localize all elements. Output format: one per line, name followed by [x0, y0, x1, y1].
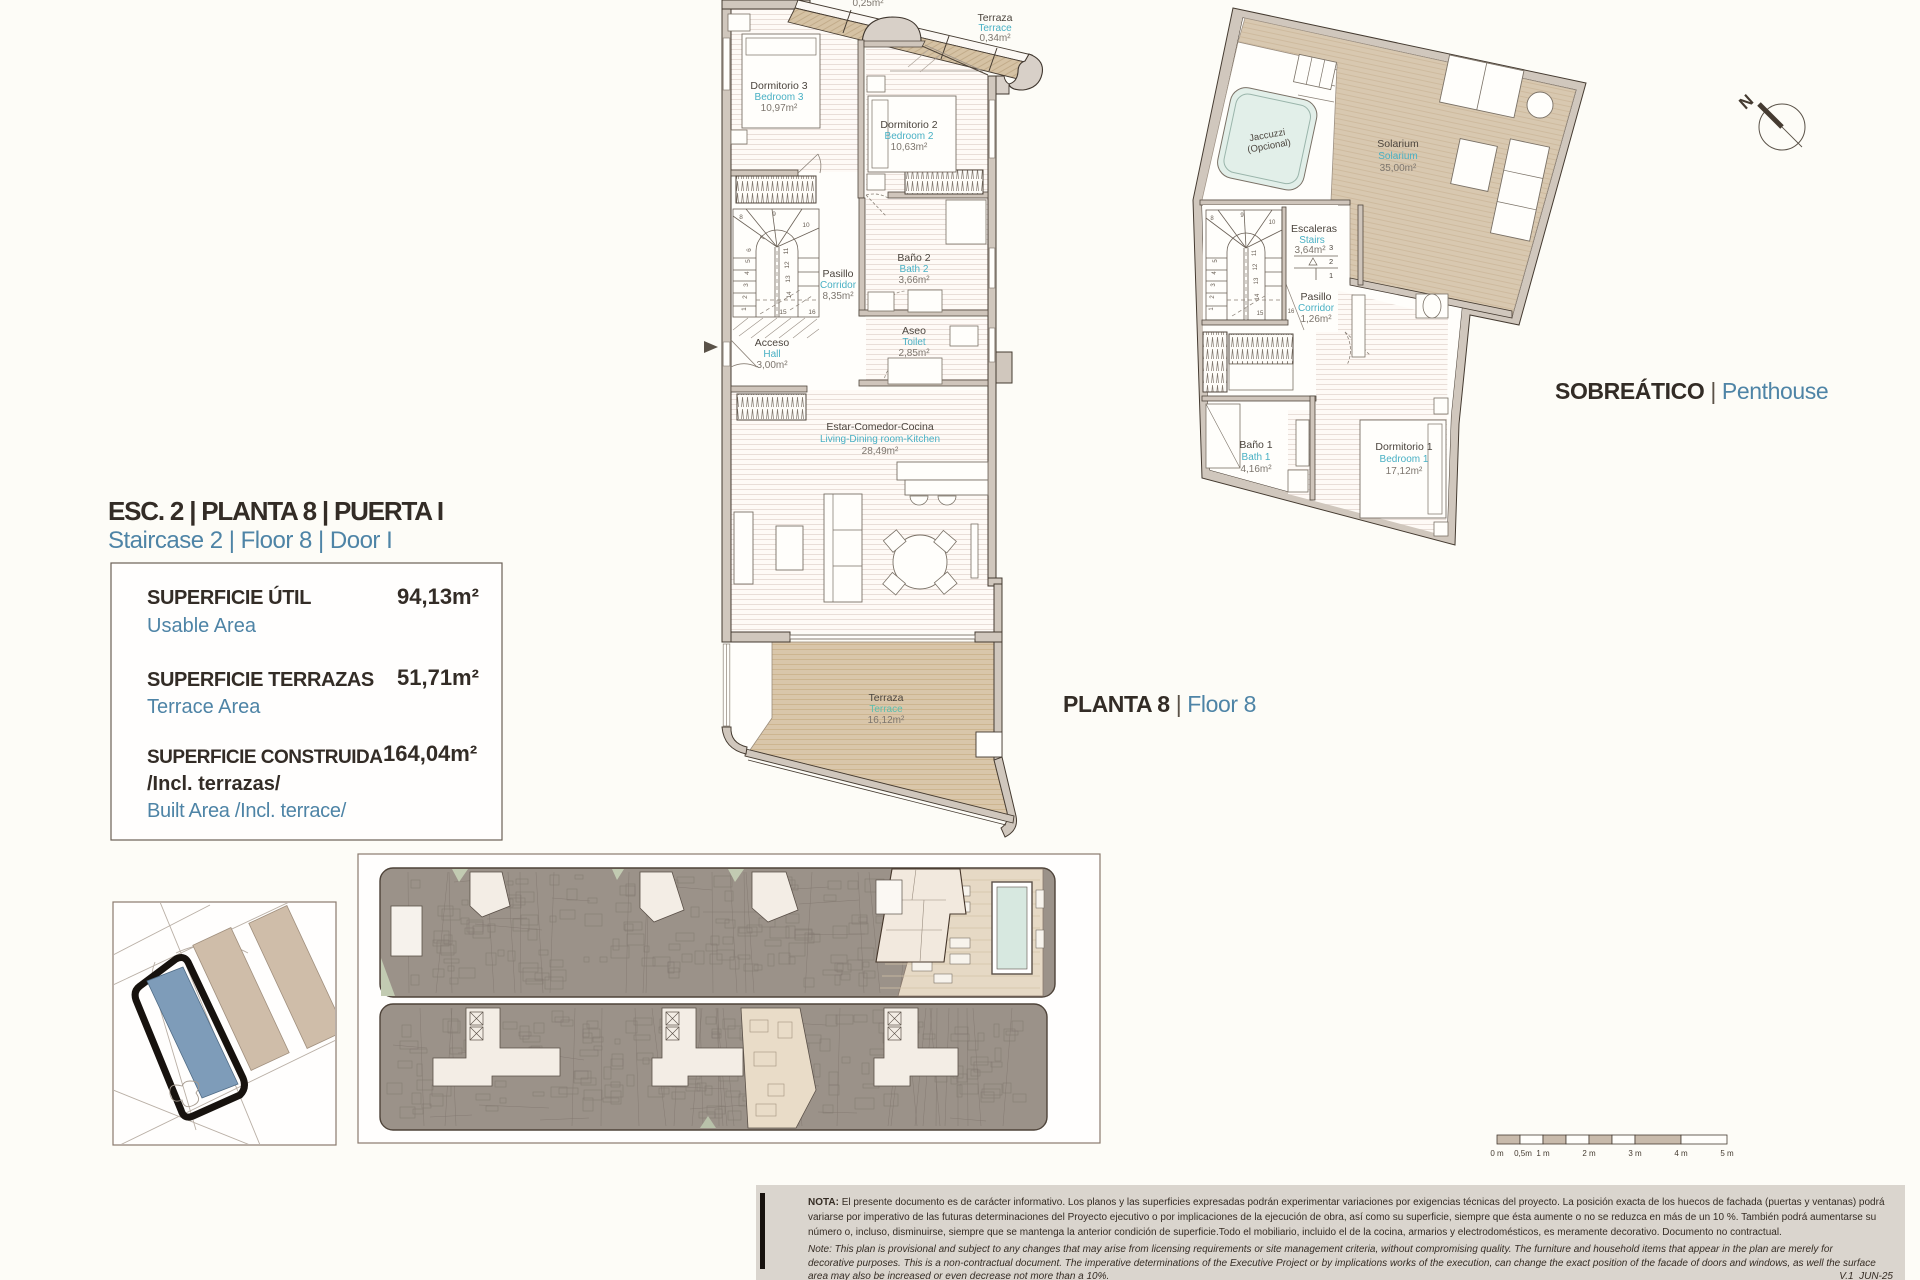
- svg-text:4 m: 4 m: [1674, 1149, 1688, 1158]
- svg-text:12: 12: [784, 261, 791, 269]
- svg-text:Dormitorio 2: Dormitorio 2: [880, 119, 937, 131]
- svg-text:0,25m²: 0,25m²: [852, 0, 884, 9]
- svg-text:16: 16: [1288, 309, 1295, 315]
- svg-text:Terrace: Terrace: [869, 704, 903, 715]
- svg-text:PLANTA 8 | Floor 8: PLANTA 8 | Floor 8: [1063, 691, 1256, 717]
- svg-text:Terraza: Terraza: [868, 692, 903, 704]
- svg-text:35,00m²: 35,00m²: [1380, 163, 1417, 174]
- svg-text:Living-Dining room-Kitchen: Living-Dining room-Kitchen: [820, 434, 940, 445]
- svg-text:2,85m²: 2,85m²: [898, 348, 930, 359]
- svg-text:Built Area /Incl. terrace/: Built Area /Incl. terrace/: [147, 800, 347, 822]
- svg-text:V.1_JUN-25: V.1_JUN-25: [1839, 1271, 1893, 1280]
- svg-text:Pasillo: Pasillo: [823, 268, 854, 280]
- svg-text:ESC. 2 | PLANTA 8 | PUERTA I: ESC. 2 | PLANTA 8 | PUERTA I: [108, 496, 443, 526]
- svg-text:/Incl. terrazas/: /Incl. terrazas/: [147, 773, 281, 795]
- svg-text:Note: This plan is provisional: Note: This plan is provisional and subje…: [808, 1244, 1833, 1255]
- svg-text:28,49m²: 28,49m²: [862, 446, 899, 457]
- svg-text:Solarium: Solarium: [1377, 138, 1419, 150]
- svg-text:8,35m²: 8,35m²: [822, 291, 854, 302]
- svg-text:variarse por imperativo de las: variarse por imperativo de las futuras d…: [808, 1212, 1876, 1223]
- svg-text:Bedroom 2: Bedroom 2: [885, 131, 934, 142]
- svg-text:2: 2: [1329, 257, 1333, 266]
- svg-text:164,04m²: 164,04m²: [383, 741, 477, 766]
- svg-text:Escaleras: Escaleras: [1291, 223, 1337, 235]
- svg-text:13: 13: [785, 275, 792, 283]
- svg-text:Bath 1: Bath 1: [1242, 452, 1271, 463]
- svg-text:14: 14: [1255, 293, 1261, 300]
- svg-text:Solarium: Solarium: [1378, 151, 1417, 162]
- svg-text:8: 8: [739, 214, 743, 221]
- svg-text:Bedroom 1: Bedroom 1: [1380, 454, 1429, 465]
- svg-text:10,63m²: 10,63m²: [891, 142, 928, 153]
- svg-text:Dormitorio 3: Dormitorio 3: [750, 80, 807, 92]
- svg-text:1: 1: [1329, 271, 1333, 280]
- svg-text:4: 4: [744, 271, 751, 275]
- svg-text:0 m: 0 m: [1490, 1149, 1504, 1158]
- svg-text:Staircase 2 | Floor 8 | Door I: Staircase 2 | Floor 8 | Door I: [108, 527, 392, 554]
- svg-text:12: 12: [1253, 263, 1259, 270]
- svg-text:15: 15: [1257, 311, 1264, 317]
- svg-text:Dormitorio 1: Dormitorio 1: [1375, 441, 1432, 453]
- svg-text:1: 1: [741, 307, 748, 311]
- svg-text:1 m: 1 m: [1536, 1149, 1550, 1158]
- svg-text:Acceso: Acceso: [755, 337, 790, 349]
- svg-text:Pasillo: Pasillo: [1301, 291, 1332, 303]
- svg-text:1,26m²: 1,26m²: [1300, 314, 1332, 325]
- svg-text:SUPERFICIE TERRAZAS: SUPERFICIE TERRAZAS: [147, 669, 374, 691]
- svg-text:Bedroom 3: Bedroom 3: [755, 92, 804, 103]
- svg-text:3: 3: [743, 283, 750, 287]
- svg-text:Baño 2: Baño 2: [897, 252, 930, 264]
- svg-text:Aseo: Aseo: [902, 325, 926, 337]
- svg-text:16,12m²: 16,12m²: [868, 715, 905, 726]
- svg-text:5: 5: [745, 259, 752, 263]
- svg-text:94,13m²: 94,13m²: [397, 584, 479, 609]
- svg-text:51,71m²: 51,71m²: [397, 665, 479, 690]
- svg-text:Corridor: Corridor: [820, 280, 857, 291]
- svg-text:5 m: 5 m: [1720, 1149, 1734, 1158]
- svg-text:4,16m²: 4,16m²: [1240, 464, 1272, 475]
- svg-text:SOBREÁTICO | Penthouse: SOBREÁTICO | Penthouse: [1555, 377, 1828, 404]
- svg-text:Hall: Hall: [763, 349, 780, 360]
- svg-text:2 m: 2 m: [1582, 1149, 1596, 1158]
- svg-text:6: 6: [746, 248, 753, 252]
- svg-text:SUPERFICIE CONSTRUIDA: SUPERFICIE CONSTRUIDA: [147, 747, 383, 768]
- svg-text:area may also be increased or: area may also be increased or even decre…: [808, 1271, 1109, 1280]
- svg-text:SUPERFICIE ÚTIL: SUPERFICIE ÚTIL: [147, 585, 311, 609]
- svg-text:3: 3: [1329, 243, 1333, 252]
- svg-text:decorative purposes. This is a: decorative purposes. This is a non-contr…: [808, 1258, 1876, 1269]
- svg-text:0,34m²: 0,34m²: [979, 33, 1011, 44]
- svg-text:Estar-Comedor-Cocina: Estar-Comedor-Cocina: [826, 421, 934, 433]
- svg-text:15: 15: [779, 309, 787, 316]
- svg-text:3 m: 3 m: [1628, 1149, 1642, 1158]
- svg-text:3,00m²: 3,00m²: [756, 360, 788, 371]
- svg-text:Baño 1: Baño 1: [1239, 439, 1272, 451]
- svg-text:0,5m: 0,5m: [1514, 1149, 1532, 1158]
- svg-text:10: 10: [802, 222, 810, 229]
- svg-text:NOTA: El presente documento e: NOTA: El presente documento es de caráct…: [808, 1197, 1885, 1208]
- svg-text:16: 16: [808, 309, 816, 316]
- svg-text:13: 13: [1254, 277, 1260, 284]
- svg-text:2: 2: [742, 295, 749, 299]
- svg-text:Corridor: Corridor: [1298, 303, 1335, 314]
- svg-text:10: 10: [1269, 220, 1276, 226]
- svg-text:3,66m²: 3,66m²: [898, 275, 930, 286]
- svg-text:Toilet: Toilet: [902, 337, 926, 348]
- svg-text:3,64m²: 3,64m²: [1294, 245, 1326, 256]
- svg-text:Bath 2: Bath 2: [900, 264, 929, 275]
- svg-text:Terrace Area: Terrace Area: [147, 696, 261, 718]
- svg-text:11: 11: [1252, 249, 1258, 256]
- svg-text:17,12m²: 17,12m²: [1386, 466, 1423, 477]
- svg-text:9: 9: [772, 211, 776, 218]
- svg-text:Usable Area: Usable Area: [147, 615, 257, 637]
- svg-text:10,97m²: 10,97m²: [761, 103, 798, 114]
- svg-text:11: 11: [783, 247, 790, 254]
- svg-text:número o, incluso, disminuirse: número o, incluso, disminuirse, siempre …: [808, 1227, 1782, 1238]
